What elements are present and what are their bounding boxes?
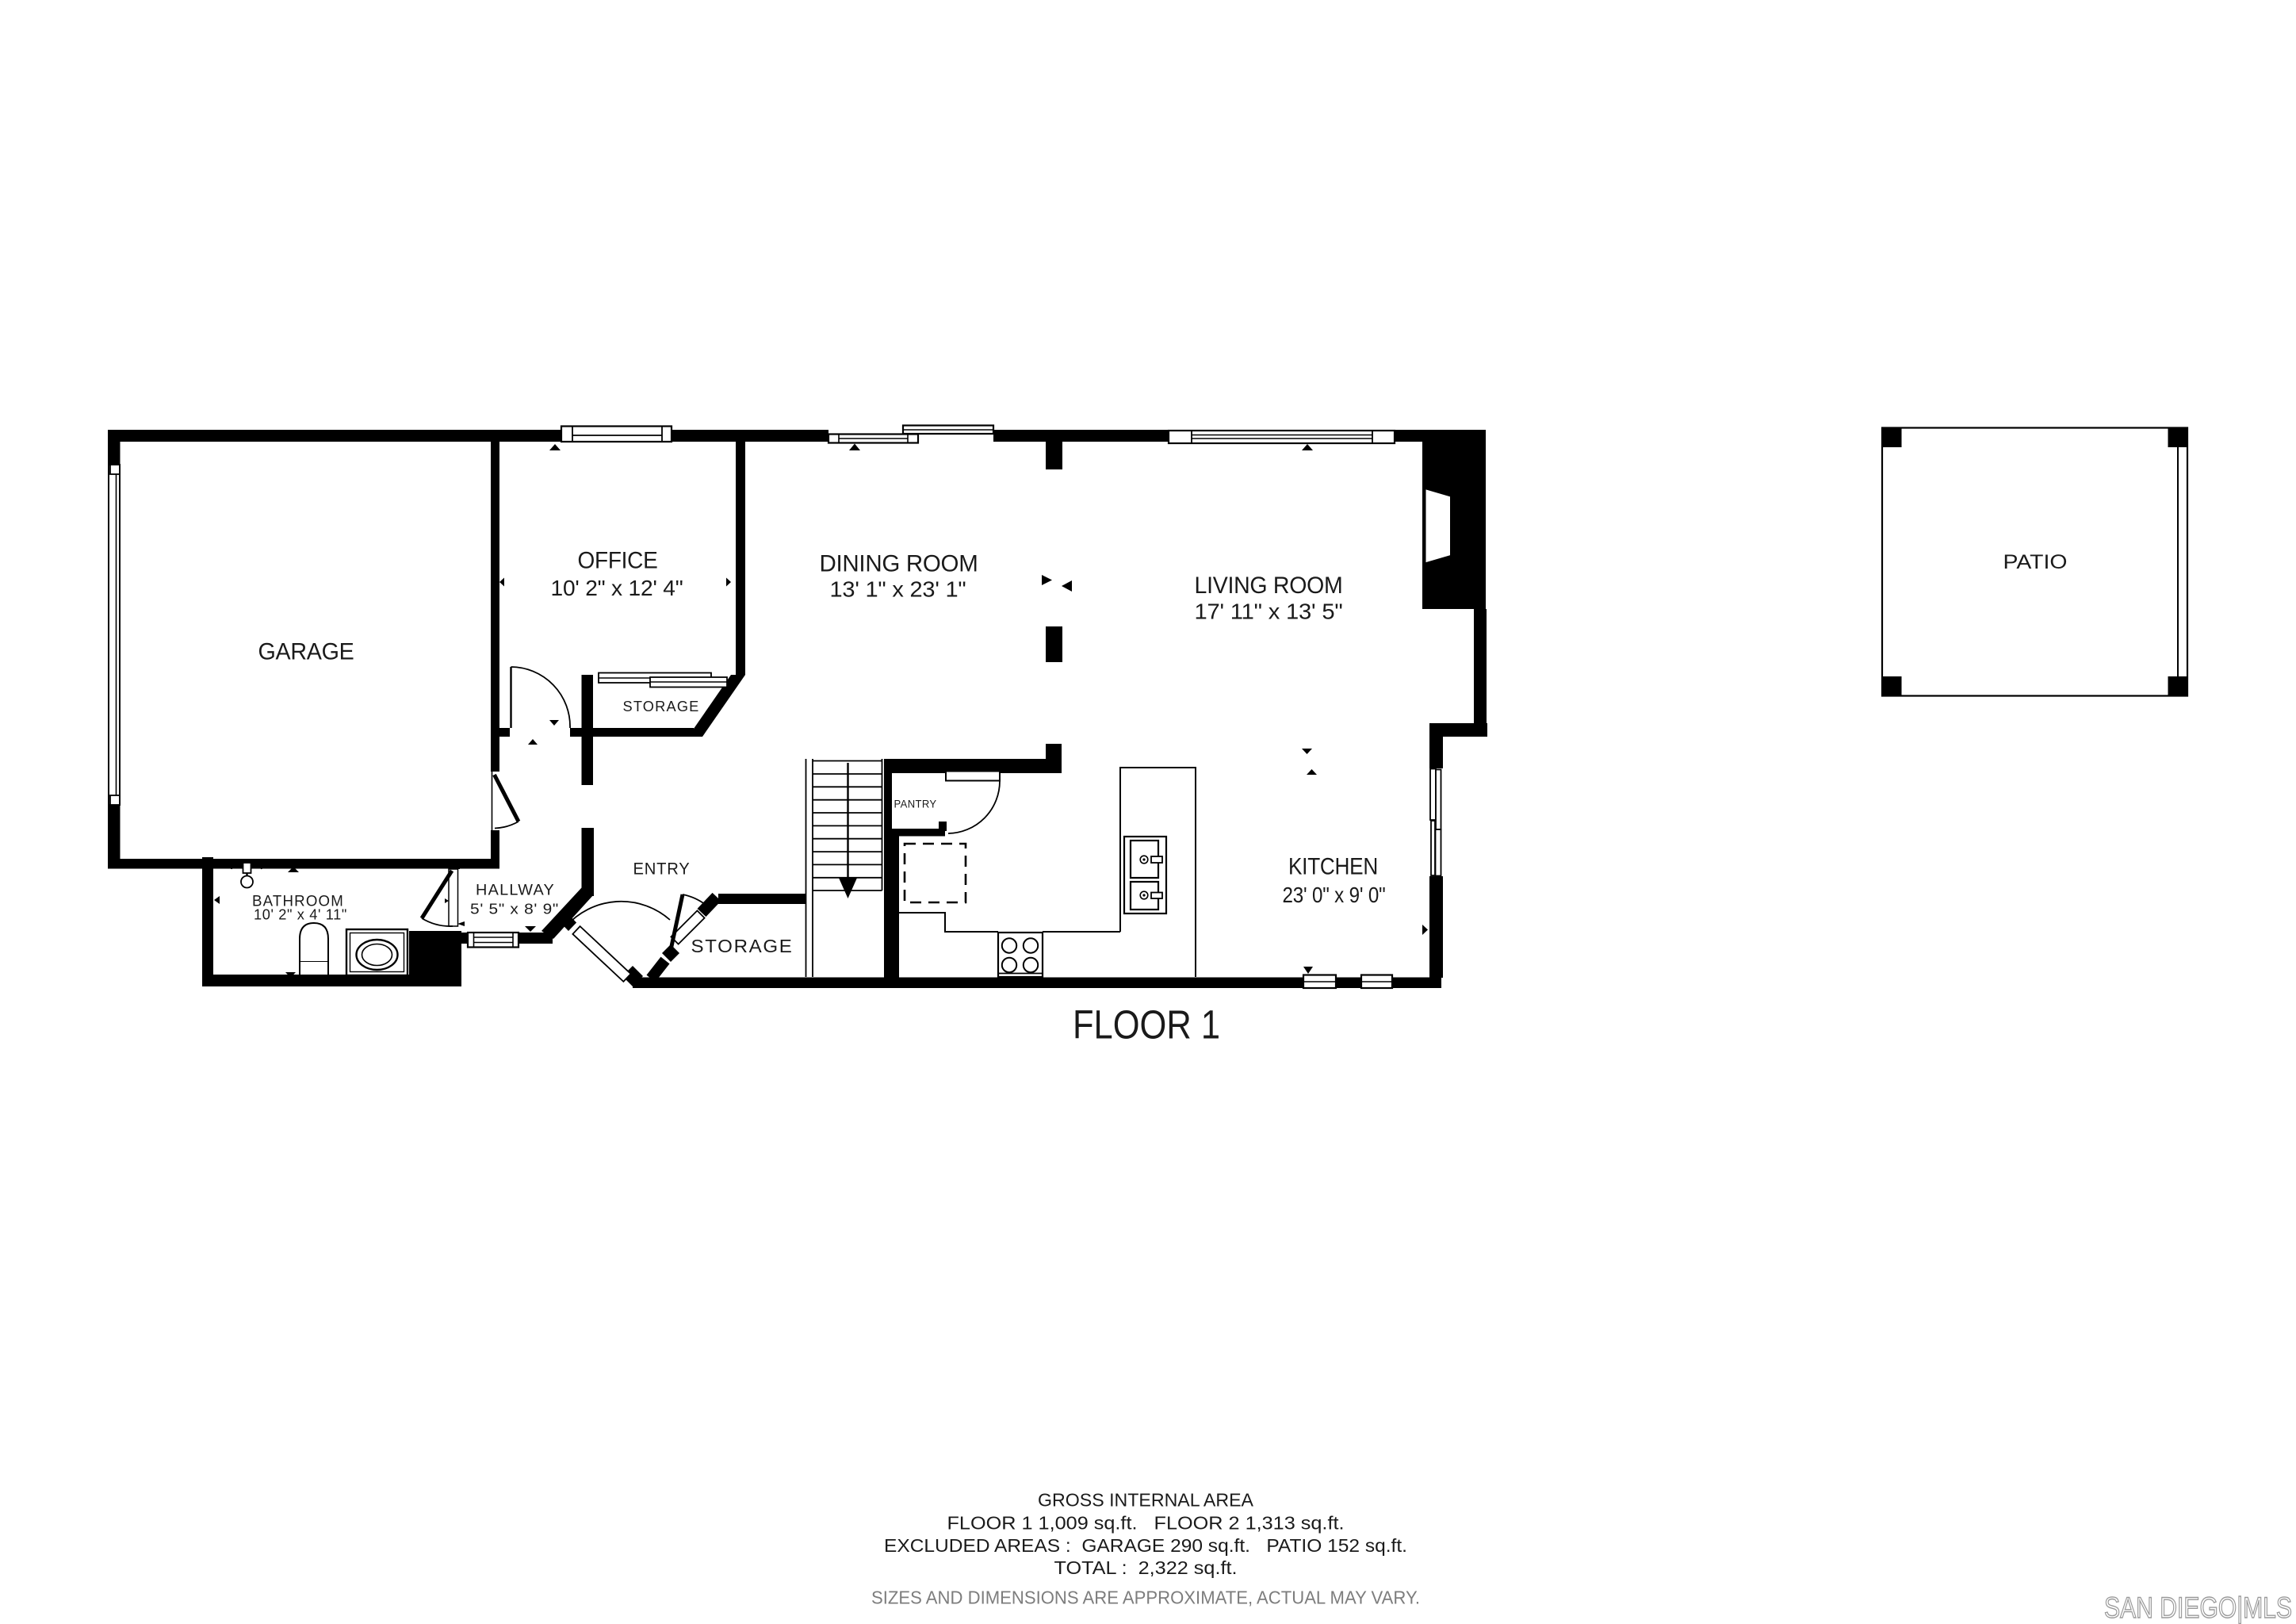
svg-text:FLOOR 1: FLOOR 1 [1073,1002,1220,1048]
svg-text:DINING ROOM: DINING ROOM [820,551,978,577]
svg-text:OFFICE: OFFICE [578,548,658,574]
svg-text:10' 2" x 12' 4": 10' 2" x 12' 4" [551,576,683,600]
svg-text:PANTRY: PANTRY [894,799,937,810]
svg-text:KITCHEN: KITCHEN [1288,854,1378,880]
svg-text:17' 11" x 13' 5": 17' 11" x 13' 5" [1195,599,1343,624]
svg-text:ENTRY: ENTRY [633,860,691,879]
svg-text:EXCLUDED AREAS : GARAGE 290 s: EXCLUDED AREAS : GARAGE 290 sq.ft. PATIO… [884,1535,1407,1556]
svg-text:5' 5" x 8' 9": 5' 5" x 8' 9" [470,902,559,917]
svg-text:SAN DIEGO|MLS: SAN DIEGO|MLS [2104,1591,2292,1624]
svg-text:23' 0" x 9' 0": 23' 0" x 9' 0" [1283,883,1386,907]
svg-text:STORAGE: STORAGE [691,936,794,956]
svg-text:10' 2" x 4' 11": 10' 2" x 4' 11" [254,907,347,923]
svg-text:LIVING ROOM: LIVING ROOM [1195,573,1343,599]
svg-text:13' 1" x 23' 1": 13' 1" x 23' 1" [830,577,966,602]
svg-text:FLOOR 1 1,009 sq.ft. FLOOR 2: FLOOR 1 1,009 sq.ft. FLOOR 2 1,313 sq.ft… [947,1513,1345,1534]
svg-text:HALLWAY: HALLWAY [476,883,555,899]
svg-text:SIZES AND DIMENSIONS ARE APPRO: SIZES AND DIMENSIONS ARE APPROXIMATE, AC… [871,1588,1420,1608]
svg-text:GROSS INTERNAL AREA: GROSS INTERNAL AREA [1038,1490,1253,1511]
svg-text:STORAGE: STORAGE [623,698,700,714]
svg-text:TOTAL : 2,322 sq.ft.: TOTAL : 2,322 sq.ft. [1054,1557,1238,1578]
svg-text:PATIO: PATIO [2003,551,2068,573]
svg-text:GARAGE: GARAGE [258,639,354,665]
